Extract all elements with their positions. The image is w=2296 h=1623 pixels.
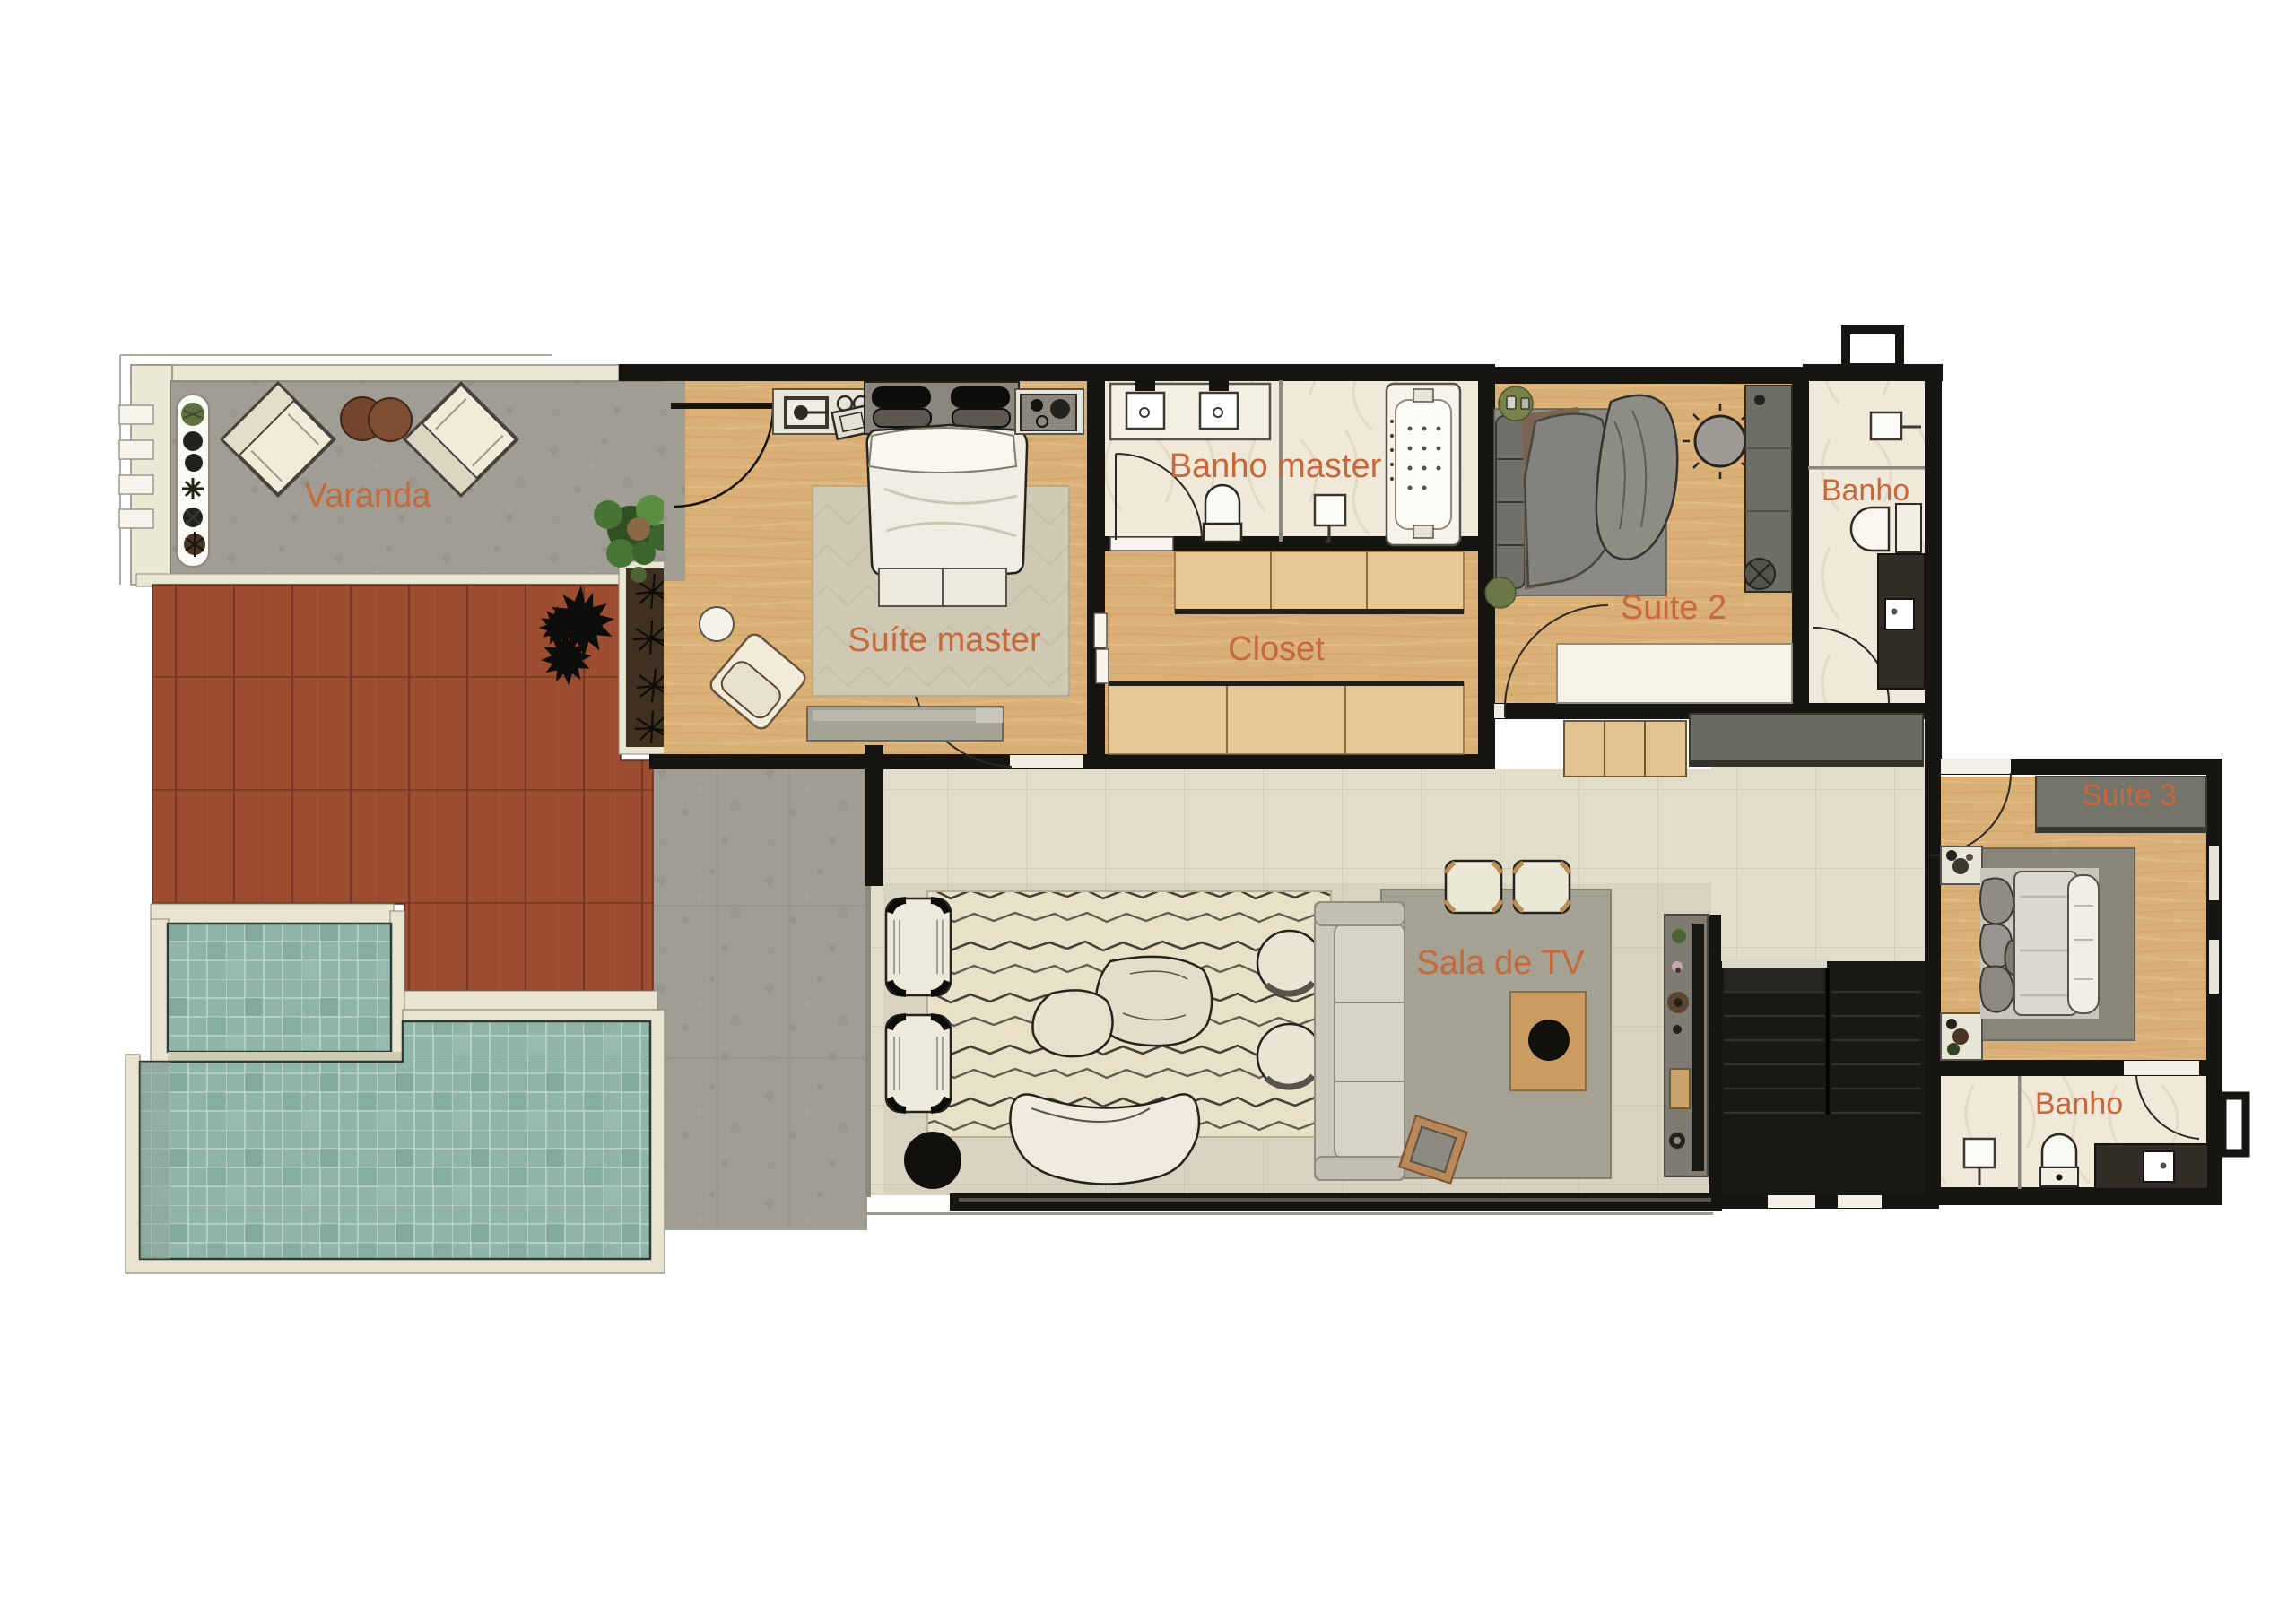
svg-text:Suite 3: Suite 3 (2082, 778, 2177, 812)
svg-text:Banho: Banho (1822, 473, 1909, 508)
svg-text:Suíte master: Suíte master (848, 621, 1041, 659)
svg-text:Sala de TV: Sala de TV (1416, 944, 1585, 982)
svg-text:Banho: Banho (2035, 1087, 2123, 1121)
svg-text:Banho master: Banho master (1170, 447, 1382, 485)
svg-text:Suite 2: Suite 2 (1621, 589, 1726, 627)
svg-text:Closet: Closet (1228, 630, 1325, 668)
svg-text:Varanda: Varanda (305, 477, 432, 515)
